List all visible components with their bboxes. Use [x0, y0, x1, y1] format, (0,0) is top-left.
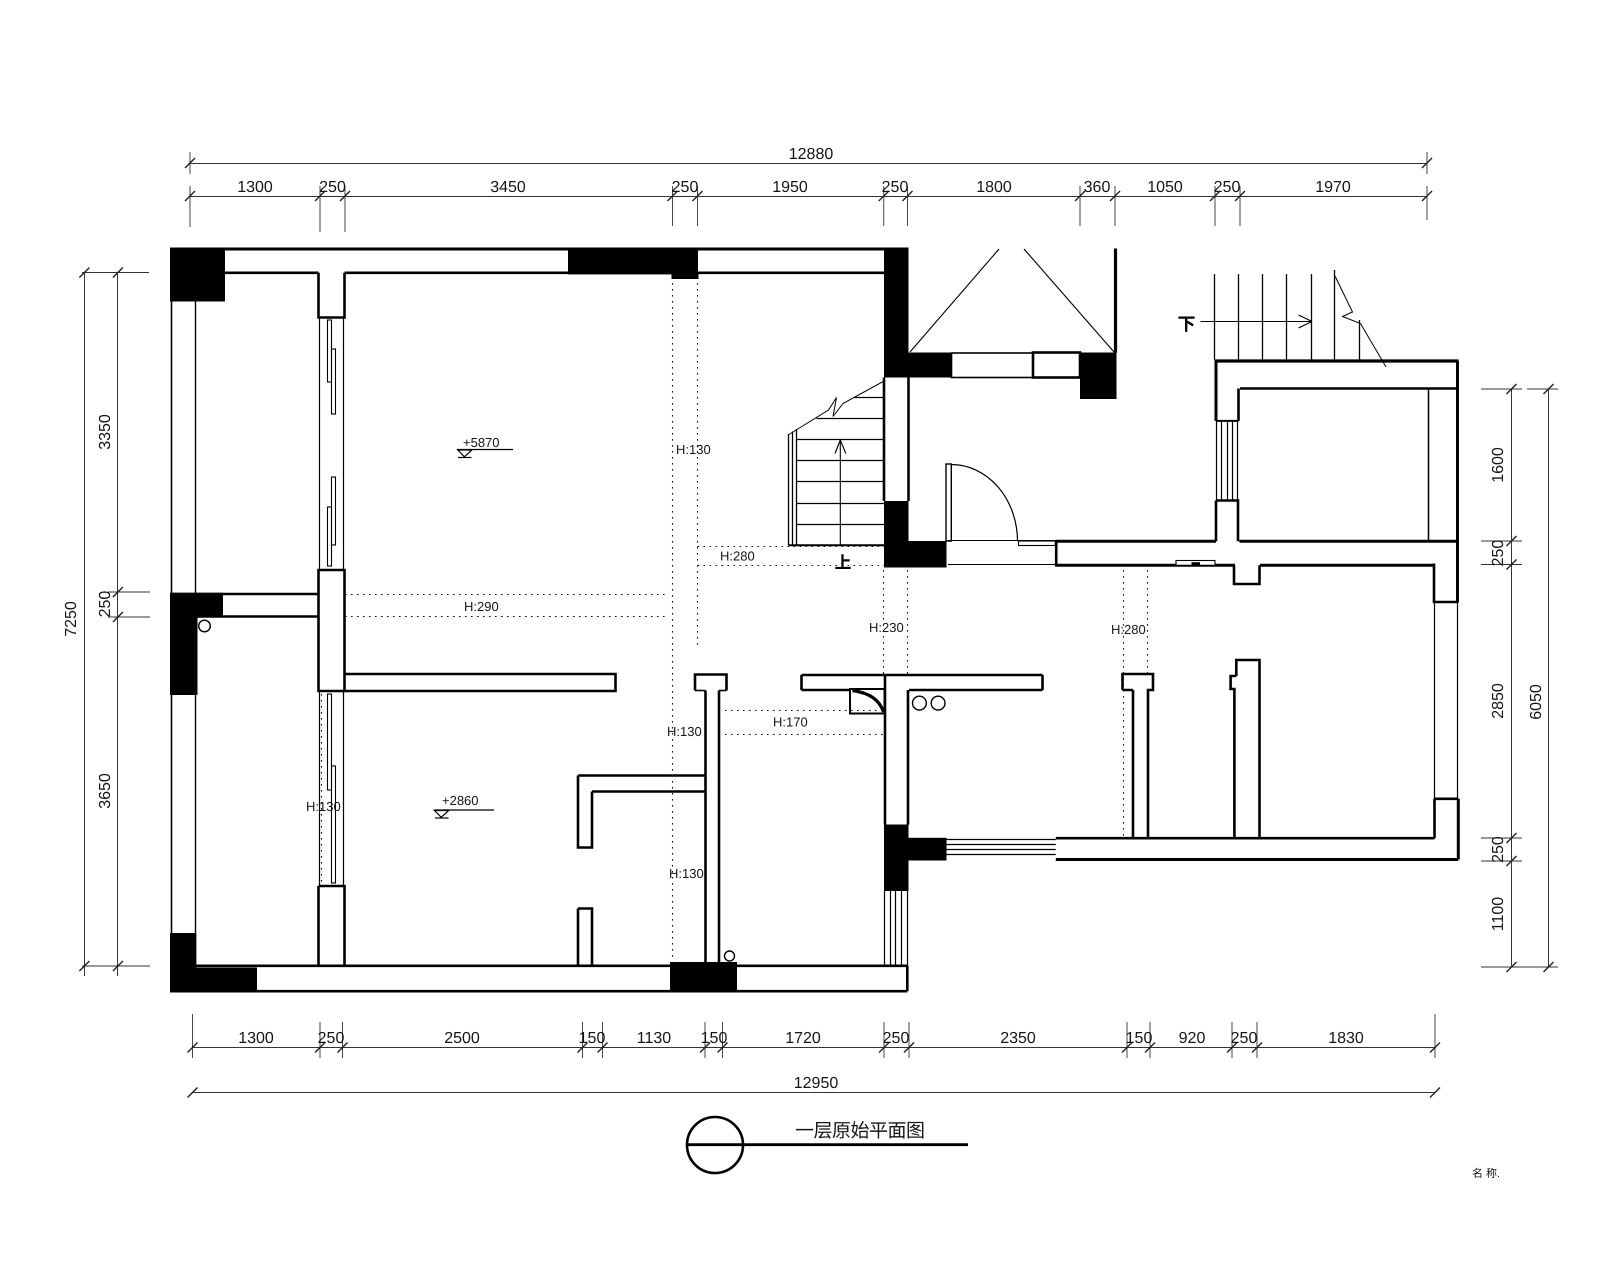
svg-text:H:280: H:280 — [1111, 622, 1146, 637]
svg-text:250: 250 — [672, 179, 699, 196]
svg-text:+5870: +5870 — [463, 435, 500, 450]
svg-text:2500: 2500 — [444, 1030, 480, 1047]
svg-text:1300: 1300 — [237, 179, 273, 196]
svg-text:上: 上 — [835, 554, 851, 572]
svg-text:150: 150 — [701, 1030, 728, 1047]
svg-text:H:230: H:230 — [869, 620, 904, 635]
svg-text:250: 250 — [97, 591, 114, 618]
svg-text:1720: 1720 — [785, 1030, 821, 1047]
svg-text:1100: 1100 — [1490, 897, 1507, 932]
svg-text:12950: 12950 — [794, 1075, 839, 1092]
svg-text:H:130: H:130 — [676, 442, 711, 457]
svg-text:H:170: H:170 — [773, 715, 808, 730]
svg-text:250: 250 — [1490, 540, 1507, 567]
svg-text:一层原始平面图: 一层原始平面图 — [795, 1121, 925, 1142]
svg-text:1830: 1830 — [1328, 1030, 1364, 1047]
svg-text:H:290: H:290 — [464, 599, 499, 614]
svg-text:1600: 1600 — [1490, 447, 1507, 483]
svg-text:3450: 3450 — [490, 179, 526, 196]
svg-text:3650: 3650 — [97, 773, 114, 809]
svg-text:+2860: +2860 — [442, 793, 479, 808]
svg-text:名 称.: 名 称. — [1472, 1167, 1500, 1180]
svg-text:7250: 7250 — [63, 601, 80, 637]
svg-text:下: 下 — [1178, 315, 1195, 334]
svg-text:250: 250 — [882, 179, 909, 196]
svg-text:250: 250 — [319, 179, 346, 196]
svg-text:H:130: H:130 — [669, 866, 704, 881]
svg-text:250: 250 — [1214, 179, 1241, 196]
svg-text:3350: 3350 — [97, 414, 114, 450]
svg-text:H:130: H:130 — [306, 799, 341, 814]
svg-text:2850: 2850 — [1490, 683, 1507, 719]
svg-text:150: 150 — [1126, 1030, 1153, 1047]
svg-text:250: 250 — [1231, 1030, 1258, 1047]
svg-text:1130: 1130 — [637, 1030, 672, 1047]
svg-text:250: 250 — [318, 1030, 345, 1047]
svg-text:250: 250 — [1490, 836, 1507, 863]
svg-text:12880: 12880 — [789, 146, 834, 163]
svg-text:150: 150 — [579, 1030, 606, 1047]
svg-text:1800: 1800 — [976, 179, 1012, 196]
svg-text:H:280: H:280 — [720, 549, 755, 564]
svg-text:920: 920 — [1179, 1030, 1206, 1047]
svg-text:2350: 2350 — [1000, 1030, 1036, 1047]
svg-text:1300: 1300 — [238, 1030, 274, 1047]
svg-text:6050: 6050 — [1528, 684, 1545, 720]
svg-text:1050: 1050 — [1147, 179, 1183, 196]
svg-text:H:130: H:130 — [667, 724, 702, 739]
svg-text:1970: 1970 — [1315, 179, 1351, 196]
svg-text:1950: 1950 — [772, 179, 808, 196]
svg-text:360: 360 — [1084, 179, 1111, 196]
svg-text:250: 250 — [883, 1030, 910, 1047]
